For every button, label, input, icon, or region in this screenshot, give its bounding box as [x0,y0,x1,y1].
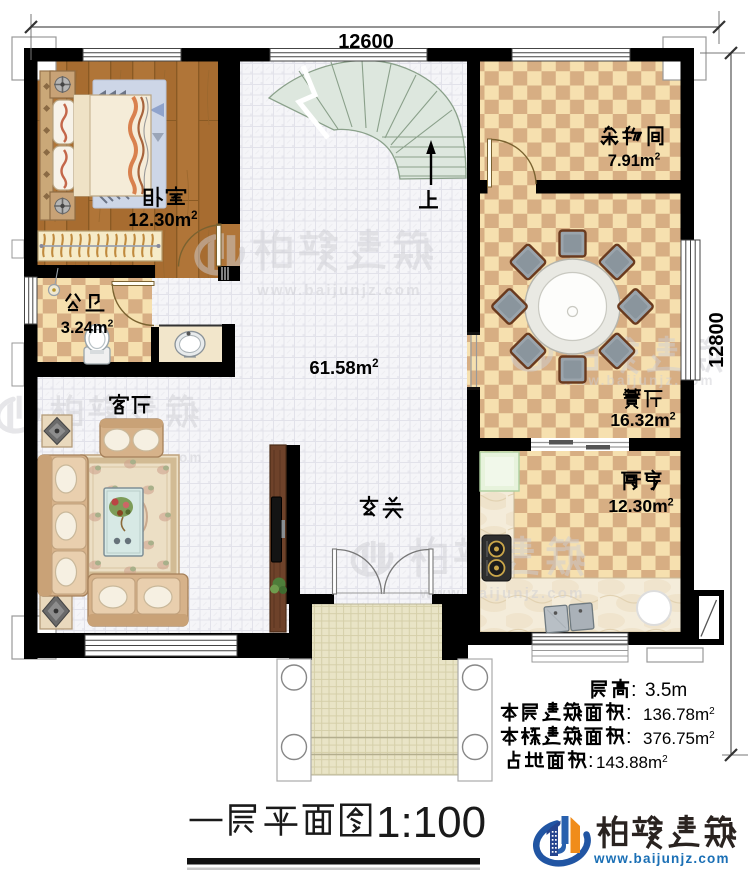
svg-text:www.baijunjz.com: www.baijunjz.com [593,851,730,866]
svg-text:143.88m2: 143.88m2 [596,753,668,772]
svg-text:3.24m2: 3.24m2 [61,319,114,337]
svg-text:12800: 12800 [706,312,728,368]
svg-text:376.75m2: 376.75m2 [643,729,715,748]
svg-text:16.32m2: 16.32m2 [610,410,675,430]
svg-text:1:100: 1:100 [376,798,486,847]
svg-text::: : [588,750,594,772]
svg-text:61.58m2: 61.58m2 [309,357,378,378]
svg-text:12.30m2: 12.30m2 [128,209,197,230]
svg-text::: : [631,679,637,701]
svg-text:www.baijunjz.com: www.baijunjz.com [256,282,422,299]
svg-text:12.30m2: 12.30m2 [608,496,673,516]
svg-text:136.78m2: 136.78m2 [643,705,715,724]
svg-text:3.5m: 3.5m [645,680,687,701]
svg-text::: : [626,702,632,724]
svg-text:7.91m2: 7.91m2 [608,152,661,170]
svg-text::: : [626,726,632,748]
svg-text:12600: 12600 [338,31,394,53]
